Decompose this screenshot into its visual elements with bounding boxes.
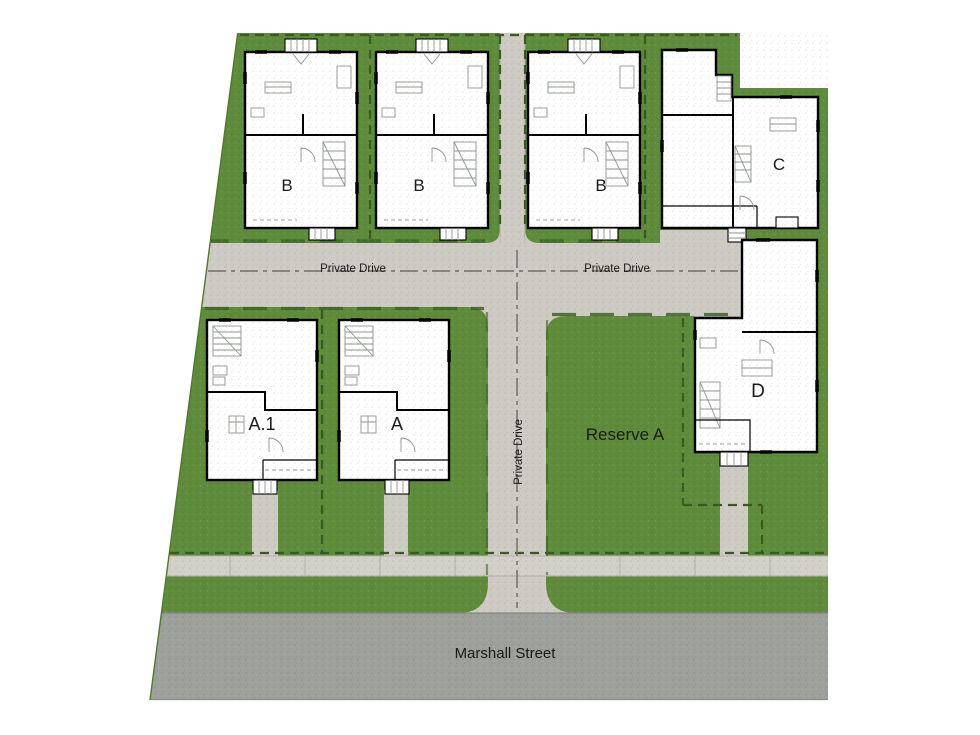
unit-a-label: A [391, 414, 403, 434]
unit-b2-label: B [413, 176, 424, 195]
unit-c-label: C [773, 155, 785, 174]
private-drive-label-east: Private Drive [584, 263, 650, 275]
private-drive-label-west: Private Drive [320, 263, 386, 275]
private-drive-label-south: Private Drive [513, 419, 525, 485]
unit-b1-label: B [281, 176, 292, 195]
unit-a1-label: A.1 [248, 414, 275, 434]
site-plan-drawing: B B B C A.1 A D Reserve A Private Drive … [0, 0, 980, 735]
marshall-street-label: Marshall Street [455, 645, 557, 662]
reserve-a-label: Reserve A [586, 425, 665, 444]
unit-d-label: D [751, 381, 765, 402]
site-plan-page: B B B C A.1 A D Reserve A Private Drive … [0, 0, 980, 735]
unit-b3-label: B [595, 176, 606, 195]
texture-overlay [150, 33, 828, 700]
